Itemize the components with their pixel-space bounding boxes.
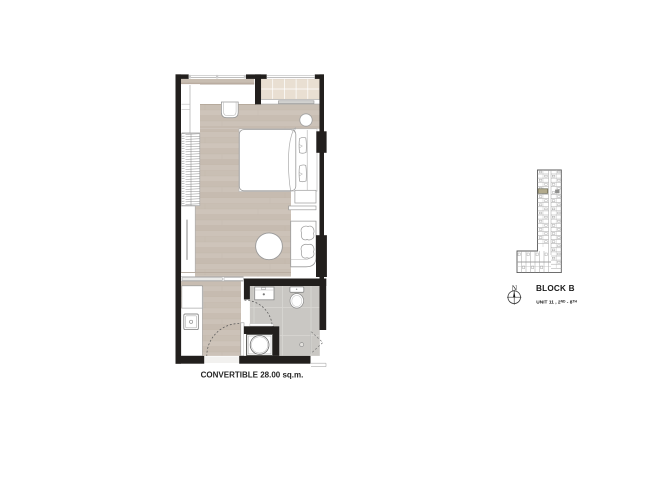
svg-text:UNIT 11 , 2ND - 8TH: UNIT 11 , 2ND - 8TH	[536, 299, 577, 305]
svg-text:BLOCK B: BLOCK B	[536, 284, 575, 293]
svg-text:CONVERTIBLE 28.00 sq.m.: CONVERTIBLE 28.00 sq.m.	[201, 371, 304, 380]
